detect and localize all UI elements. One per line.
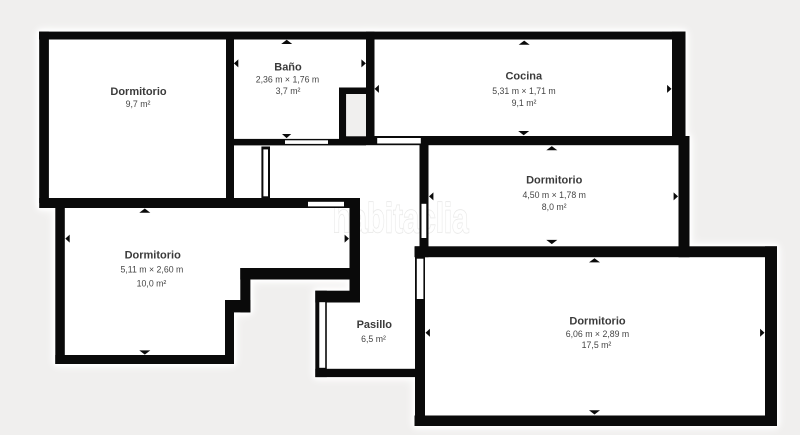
svg-text:17,5 m²: 17,5 m²	[582, 340, 612, 350]
svg-text:2,36 m × 1,76 m: 2,36 m × 1,76 m	[256, 75, 319, 85]
svg-text:Pasillo: Pasillo	[357, 319, 393, 331]
svg-text:10,0 m²: 10,0 m²	[137, 279, 167, 289]
svg-text:Dormitorio: Dormitorio	[569, 315, 626, 327]
svg-text:Cocina: Cocina	[505, 71, 543, 83]
svg-text:8,0 m²: 8,0 m²	[542, 202, 567, 212]
svg-text:3,7 m²: 3,7 m²	[276, 86, 301, 96]
svg-text:6,5 m²: 6,5 m²	[361, 334, 386, 344]
svg-text:5,11 m × 2,60 m: 5,11 m × 2,60 m	[120, 265, 183, 275]
svg-text:6,06 m × 2,89 m: 6,06 m × 2,89 m	[566, 329, 629, 339]
svg-text:5,31 m × 1,71 m: 5,31 m × 1,71 m	[492, 86, 555, 96]
svg-text:9,7 m²: 9,7 m²	[126, 99, 151, 109]
svg-text:Dormitorio: Dormitorio	[125, 250, 182, 262]
svg-text:Dormitorio: Dormitorio	[110, 86, 167, 98]
svg-text:Dormitorio: Dormitorio	[526, 174, 583, 186]
svg-text:9,1 m²: 9,1 m²	[512, 98, 537, 108]
svg-text:Baño: Baño	[274, 61, 302, 73]
svg-text:4,50 m × 1,78 m: 4,50 m × 1,78 m	[522, 190, 585, 200]
